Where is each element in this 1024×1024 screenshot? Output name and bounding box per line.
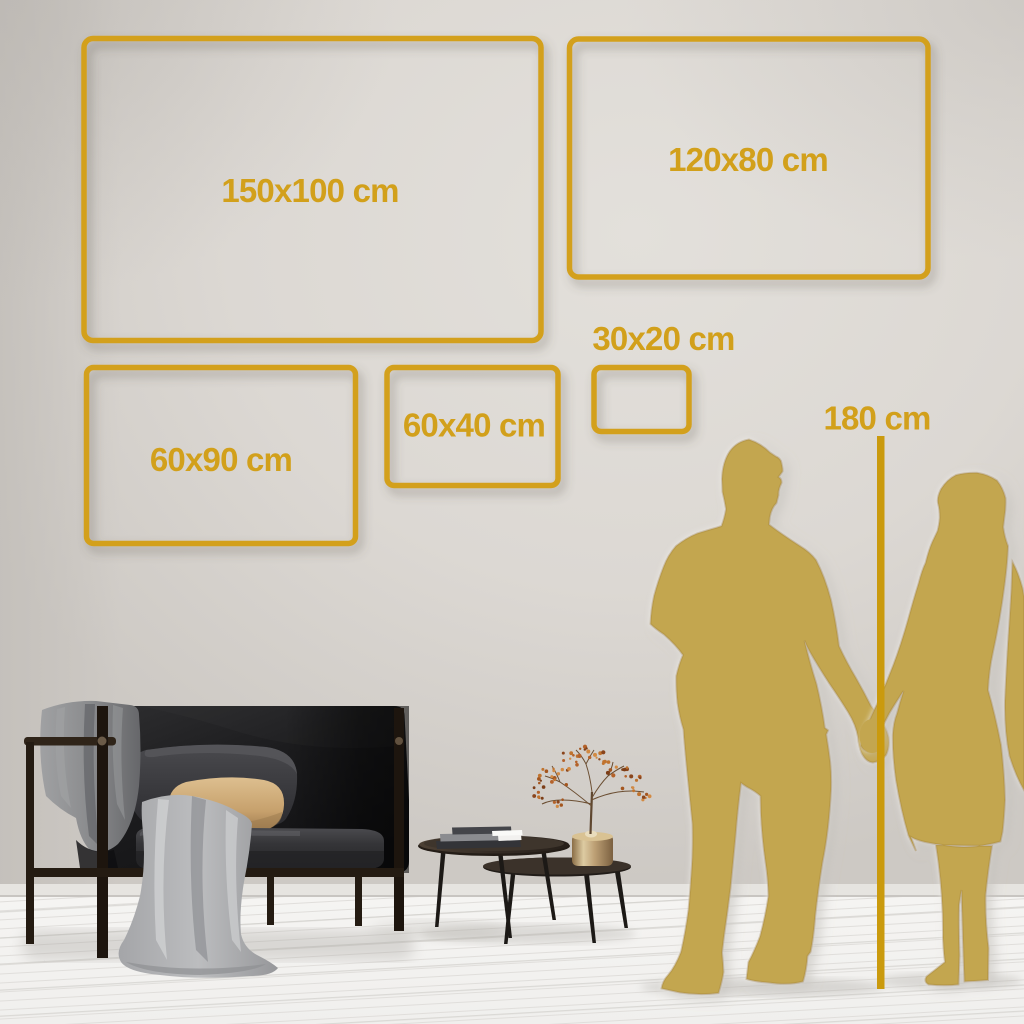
svg-text:180 cm: 180 cm — [823, 400, 930, 437]
svg-text:150x100 cm: 150x100 cm — [221, 172, 398, 209]
svg-text:120x80 cm: 120x80 cm — [668, 141, 828, 178]
svg-text:30x20 cm: 30x20 cm — [592, 320, 734, 357]
svg-text:60x90 cm: 60x90 cm — [150, 441, 292, 478]
svg-text:60x40 cm: 60x40 cm — [403, 407, 545, 444]
